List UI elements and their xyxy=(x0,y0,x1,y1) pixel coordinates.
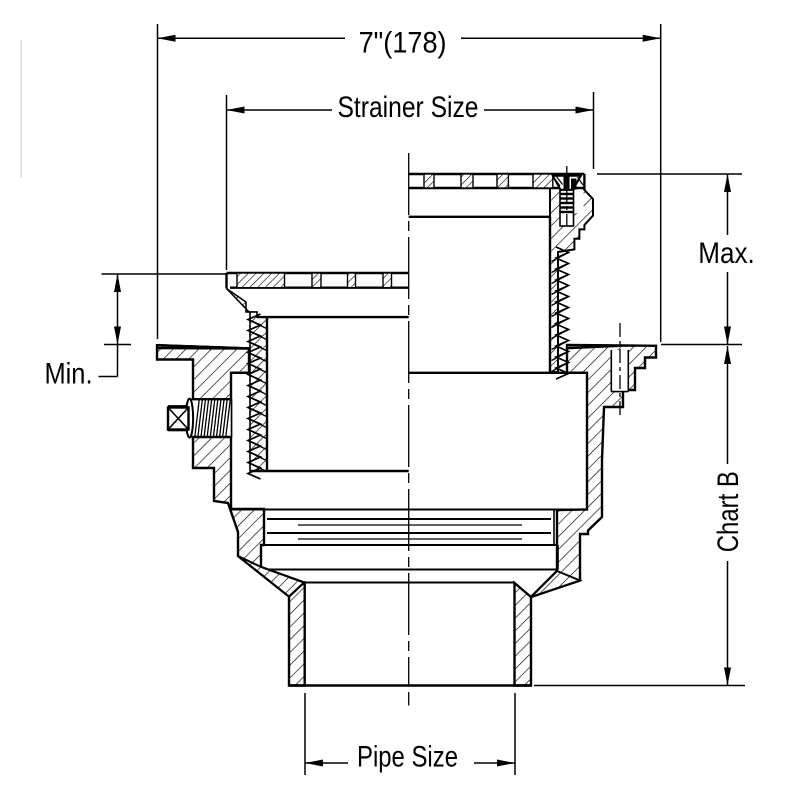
svg-text:7"(178): 7"(178) xyxy=(359,27,447,60)
svg-text:Min.: Min. xyxy=(45,358,93,391)
svg-text:Strainer Size: Strainer Size xyxy=(338,91,479,124)
svg-text:Chart B: Chart B xyxy=(712,471,745,552)
svg-text:Max.: Max. xyxy=(698,237,755,270)
svg-text:Pipe Size: Pipe Size xyxy=(357,741,458,774)
